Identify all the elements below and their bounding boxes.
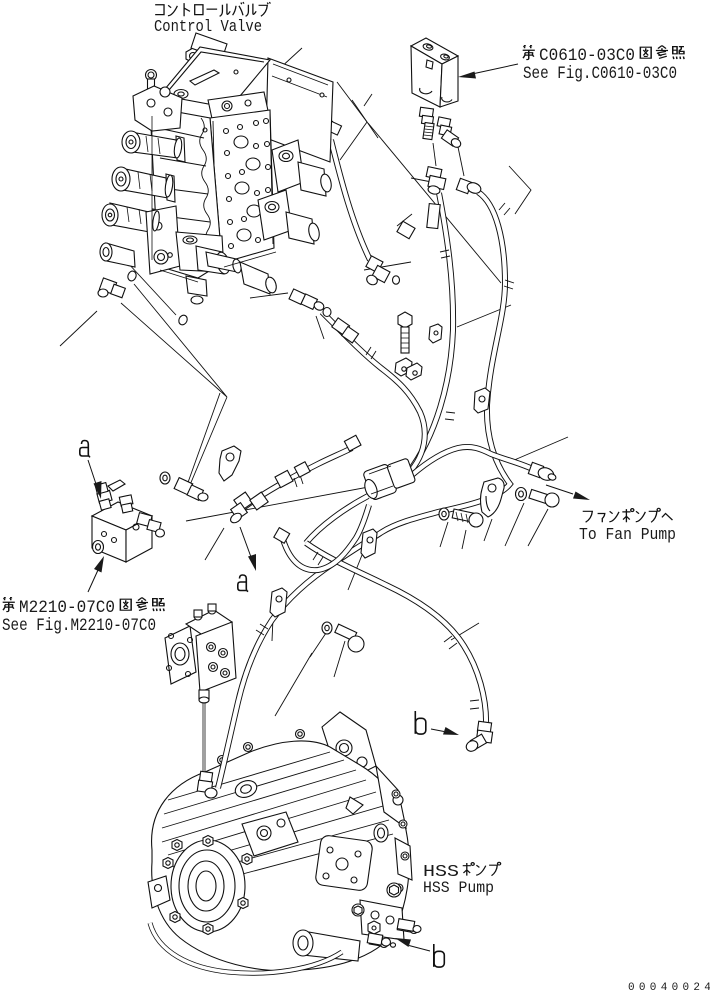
- svg-text:M2210-07C0: M2210-07C0: [19, 598, 115, 618]
- svg-text:See Fig.M2210-07C0: See Fig.M2210-07C0: [2, 616, 156, 636]
- svg-text:To Fan Pump: To Fan Pump: [579, 526, 676, 545]
- svg-text:HSS Pump: HSS Pump: [423, 879, 494, 897]
- svg-text:Control Valve: Control Valve: [154, 18, 262, 37]
- svg-text:00040024: 00040024: [628, 982, 710, 992]
- svg-text:See Fig.C0610-03C0: See Fig.C0610-03C0: [523, 64, 677, 84]
- svg-text:C0610-03C0: C0610-03C0: [539, 46, 635, 66]
